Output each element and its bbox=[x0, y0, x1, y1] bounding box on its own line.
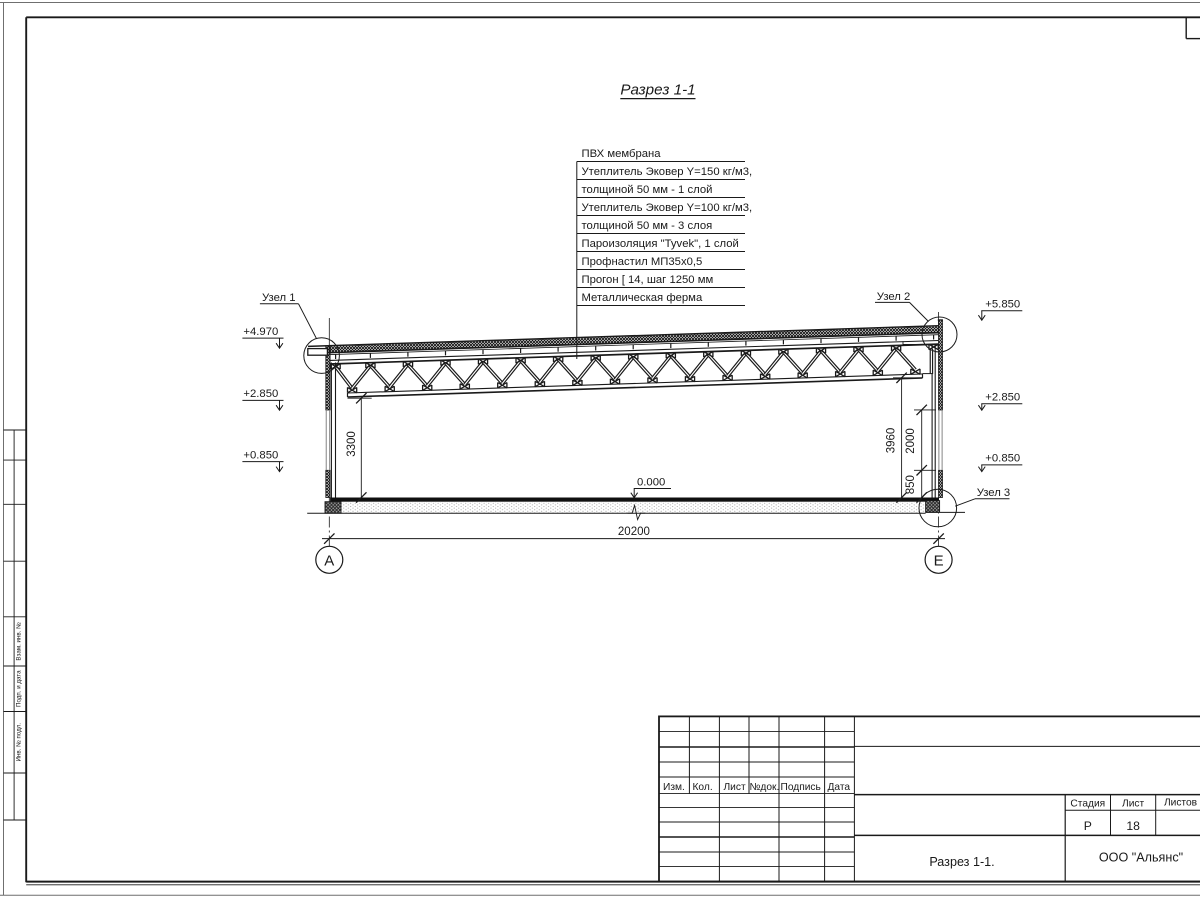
svg-text:Узел 3: Узел 3 bbox=[977, 487, 1011, 499]
svg-text:Дата: Дата bbox=[828, 782, 851, 793]
svg-text:Утеплитель Эковер Y=150 кг/м3,: Утеплитель Эковер Y=150 кг/м3, bbox=[582, 166, 753, 178]
svg-text:Узел 2: Узел 2 bbox=[877, 291, 911, 303]
svg-text:Разрез 1-1: Разрез 1-1 bbox=[620, 82, 695, 99]
svg-text:Кол.: Кол. bbox=[693, 782, 713, 793]
svg-text:толщиной 50 мм - 1 слой: толщиной 50 мм - 1 слой bbox=[582, 184, 713, 196]
svg-text:Лист: Лист bbox=[1122, 799, 1144, 810]
svg-text:Прогон [ 14, шаг 1250 мм: Прогон [ 14, шаг 1250 мм bbox=[582, 274, 714, 286]
svg-text:Подп. и дата: Подп. и дата bbox=[16, 670, 23, 707]
svg-text:Листов: Листов bbox=[1164, 798, 1197, 809]
svg-text:+2.850: +2.850 bbox=[985, 392, 1020, 404]
svg-text:Узел 1: Узел 1 bbox=[262, 292, 296, 304]
svg-text:3960: 3960 bbox=[886, 428, 898, 454]
svg-text:Изм.: Изм. bbox=[663, 782, 685, 793]
svg-text:+5.850: +5.850 bbox=[985, 299, 1020, 311]
svg-text:+0.850: +0.850 bbox=[985, 453, 1020, 465]
svg-text:Стадия: Стадия bbox=[1070, 799, 1105, 810]
svg-text:Взам. инв. №: Взам. инв. № bbox=[16, 622, 23, 661]
svg-text:850: 850 bbox=[905, 475, 917, 494]
svg-text:Утеплитель Эковер Y=100 кг/м3,: Утеплитель Эковер Y=100 кг/м3, bbox=[582, 202, 753, 214]
svg-text:Инв. № подл.: Инв. № подл. bbox=[16, 723, 23, 762]
svg-text:Р: Р bbox=[1084, 819, 1092, 833]
svg-text:ООО "Альянс": ООО "Альянс" bbox=[1099, 851, 1183, 865]
svg-text:Пароизоляция "Tyvek", 1 слой: Пароизоляция "Tyvek", 1 слой bbox=[582, 238, 739, 250]
svg-text:0.000: 0.000 bbox=[637, 476, 665, 488]
svg-text:20200: 20200 bbox=[618, 526, 650, 538]
svg-text:+2.850: +2.850 bbox=[243, 388, 278, 400]
svg-text:Профнастил МП35х0,5: Профнастил МП35х0,5 bbox=[582, 256, 703, 268]
svg-text:ПВХ мембрана: ПВХ мембрана bbox=[582, 148, 662, 160]
svg-text:толщиной 50 мм - 3 слоя: толщиной 50 мм - 3 слоя bbox=[582, 220, 713, 232]
svg-text:А: А bbox=[324, 552, 334, 569]
svg-text:+4.970: +4.970 bbox=[243, 326, 278, 338]
svg-text:Разрез 1-1.: Разрез 1-1. bbox=[929, 855, 994, 869]
svg-text:2000: 2000 bbox=[905, 428, 917, 454]
svg-text:+0.850: +0.850 bbox=[243, 449, 278, 461]
svg-text:3300: 3300 bbox=[346, 431, 358, 457]
svg-text:Металлическая ферма: Металлическая ферма bbox=[582, 292, 703, 304]
svg-text:Лист: Лист bbox=[724, 782, 746, 793]
svg-text:Е: Е bbox=[934, 552, 944, 569]
svg-text:18: 18 bbox=[1126, 819, 1140, 833]
svg-text:Подпись: Подпись bbox=[781, 782, 821, 793]
svg-text:№док.: №док. bbox=[750, 782, 780, 793]
